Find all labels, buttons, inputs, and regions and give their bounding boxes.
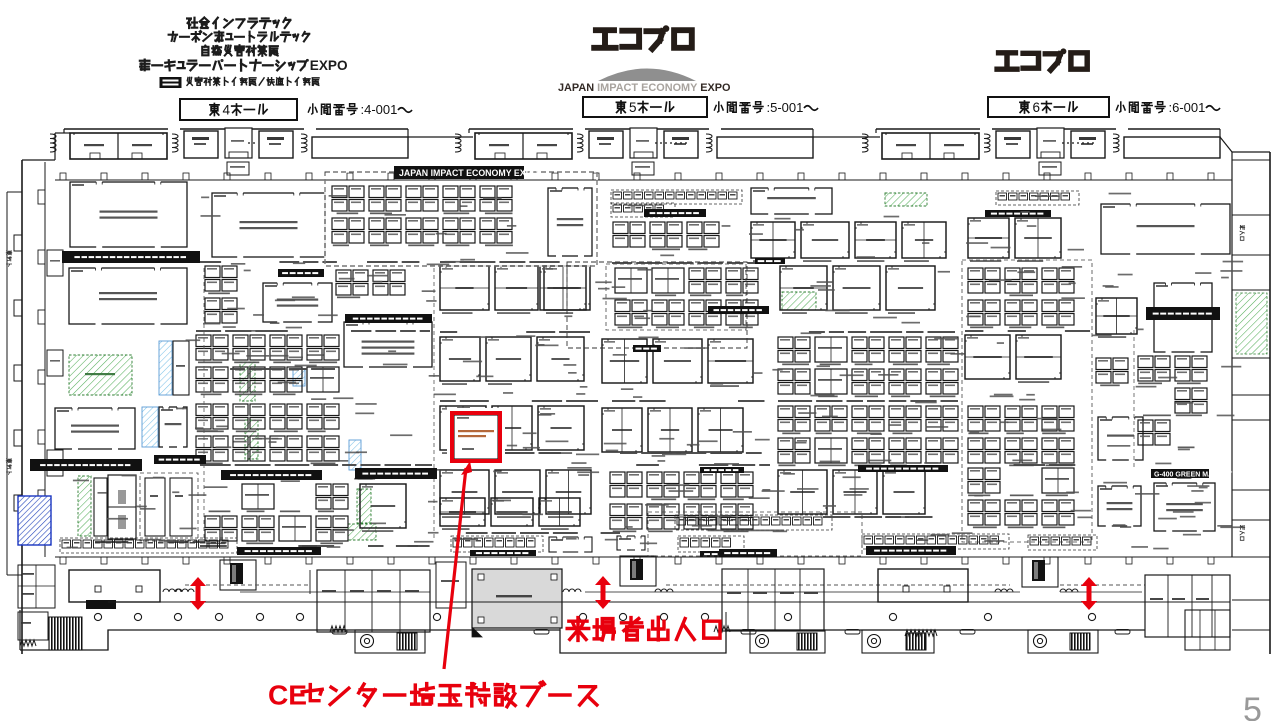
svg-text:4: 4 xyxy=(223,103,231,118)
svg-text:6: 6 xyxy=(1033,100,1041,115)
svg-text::4-001: :4-001 xyxy=(361,102,398,117)
svg-text:EXPO: EXPO xyxy=(310,58,348,73)
svg-text:5: 5 xyxy=(1243,691,1262,721)
svg-text:JAPAN IMPACT ECONOMY EXPO: JAPAN IMPACT ECONOMY EXPO xyxy=(558,82,731,94)
svg-text::6-001: :6-001 xyxy=(1169,100,1206,115)
svg-text:5: 5 xyxy=(629,100,637,115)
svg-text:G-400 GREEN MARKET: G-400 GREEN MARKET xyxy=(1154,472,1233,479)
svg-text:CE: CE xyxy=(268,679,307,710)
svg-text:JAPAN IMPACT ECONOMY EXPO: JAPAN IMPACT ECONOMY EXPO xyxy=(399,168,538,178)
svg-text::5-001: :5-001 xyxy=(767,100,804,115)
